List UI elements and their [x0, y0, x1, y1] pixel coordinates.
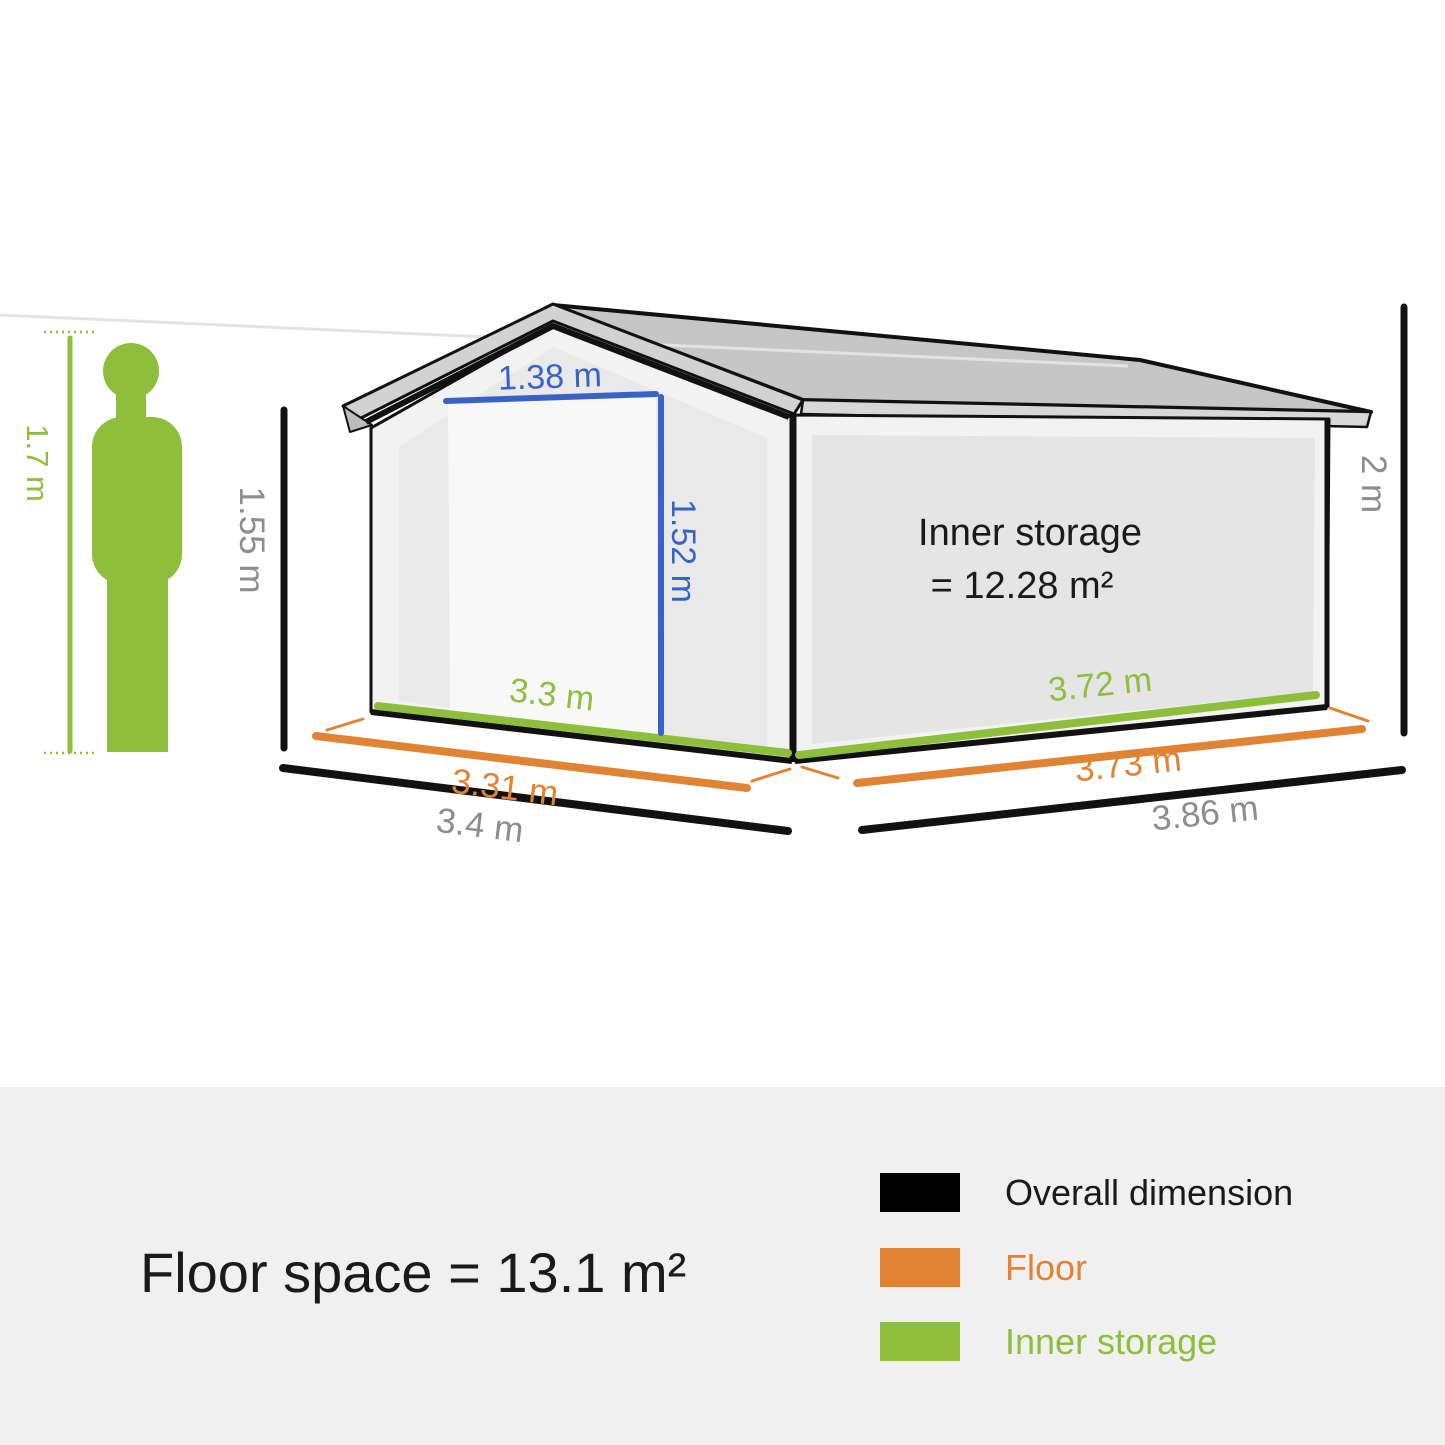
floor-space-label: Floor space = 13.1 m² [140, 1241, 686, 1304]
inner-storage-label-line1: Inner storage [918, 512, 1142, 554]
person-height-label: 1.7 m [20, 424, 55, 502]
inner-storage-label-line2: = 12.28 m² [931, 565, 1114, 607]
legend-label-overall: Overall dimension [1005, 1172, 1293, 1213]
legend-swatch-overall [880, 1173, 960, 1212]
door-width-label: 1.38 m [497, 356, 602, 398]
wall-height-label: 1.55 m [232, 487, 271, 594]
legend-swatch-inner-storage [880, 1322, 960, 1361]
person-legs [107, 515, 168, 752]
total-height-label: 2 m [1354, 455, 1393, 513]
shed-dimension-diagram: 1.7 m 1.38 m 1.52 m 1.55 m 2 m 3.3 m 3.7… [0, 0, 1445, 1445]
legend-swatch-floor [880, 1248, 960, 1287]
legend-label-inner-storage: Inner storage [1005, 1321, 1217, 1362]
door-height-label: 1.52 m [664, 499, 702, 603]
person-head [103, 343, 159, 399]
legend-label-floor: Floor [1005, 1247, 1087, 1288]
